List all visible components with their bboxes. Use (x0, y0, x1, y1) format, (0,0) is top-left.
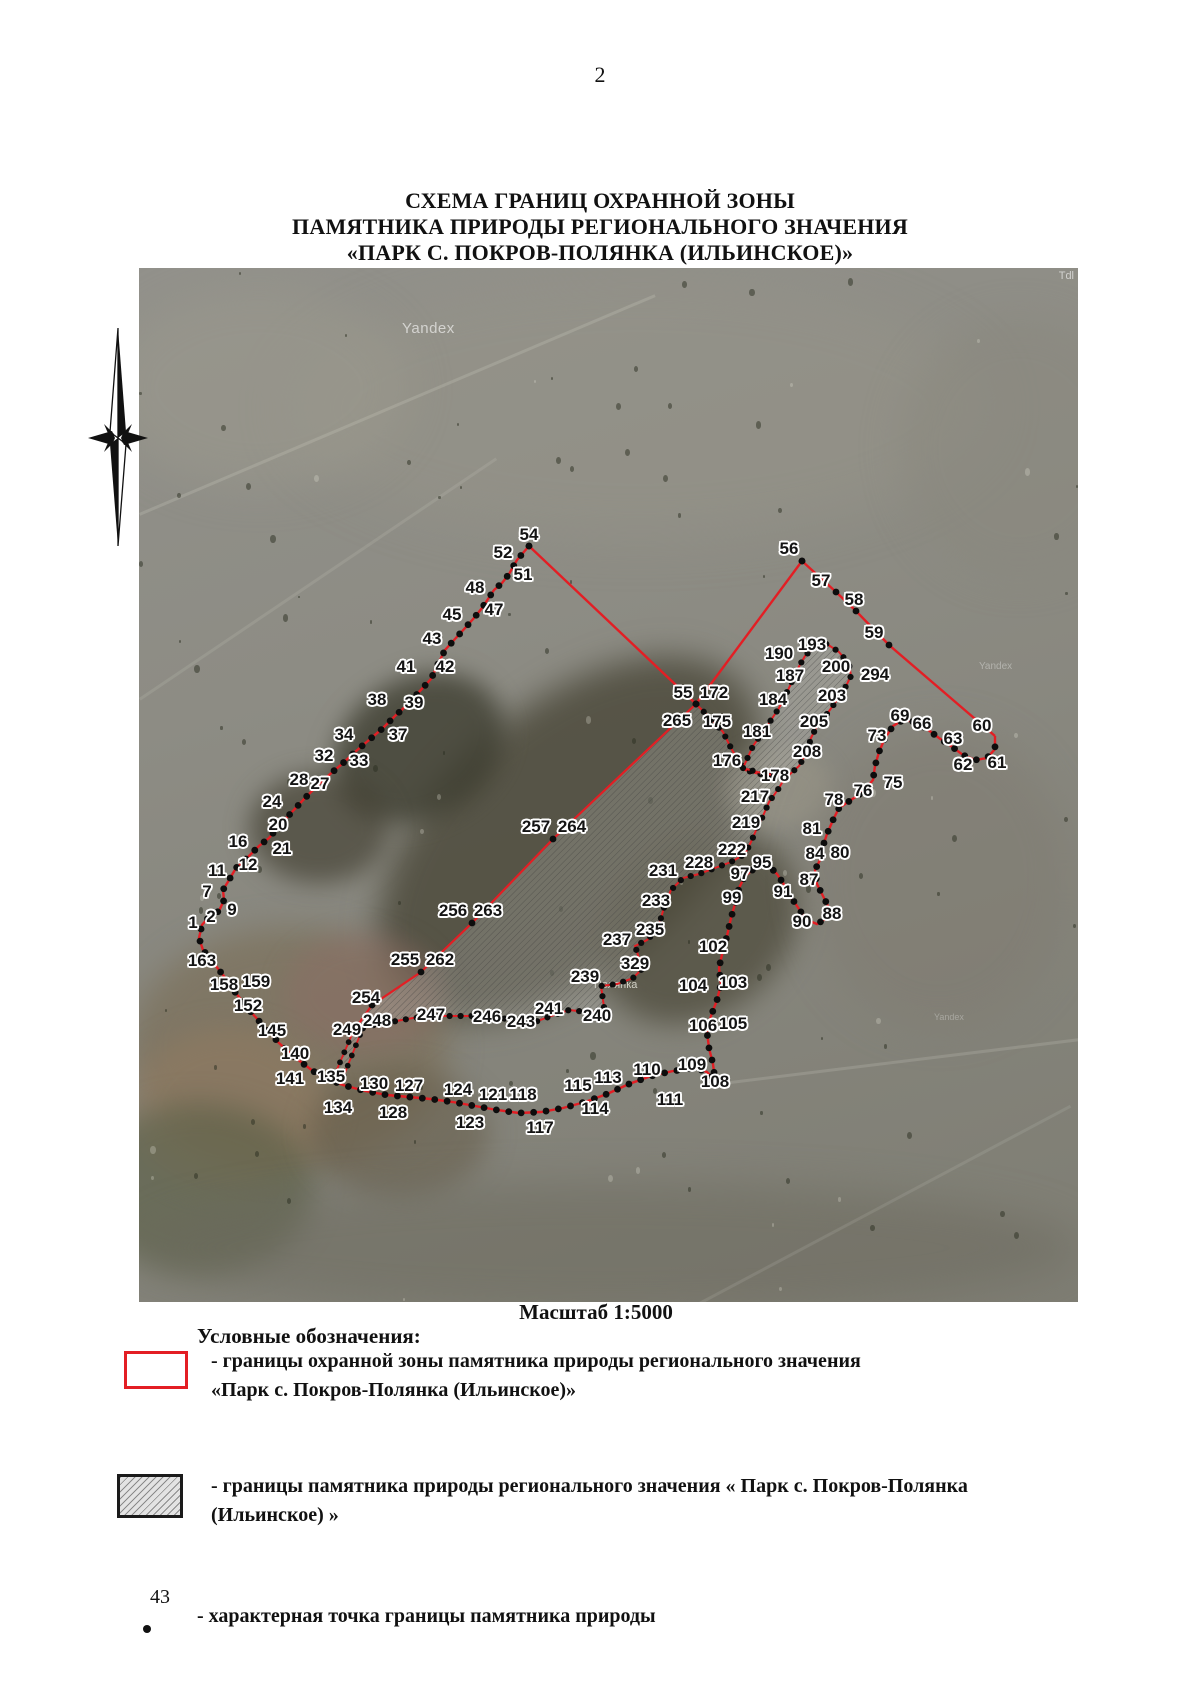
boundary-point-label: 61 (988, 753, 1007, 773)
boundary-point-label: 27 (311, 774, 330, 794)
boundary-point-label: 66 (913, 714, 932, 734)
boundary-point-label: 114 (581, 1099, 608, 1119)
boundary-point-label: 159 (242, 972, 270, 992)
boundary-point-label: 141 (276, 1069, 304, 1089)
boundary-point-label: 254 (352, 988, 380, 1008)
boundary-point-label: 235 (636, 920, 664, 940)
boundary-point-label: 246 (473, 1007, 501, 1027)
boundary-point-label: 1 (188, 913, 197, 933)
boundary-point-label: 80 (831, 843, 850, 863)
boundary-point-label: 178 (761, 766, 789, 786)
boundary-point-label: 237 (603, 930, 631, 950)
boundary-point-label: 163 (188, 951, 216, 971)
boundary-point-label: 187 (776, 666, 804, 686)
title-line-1: СХЕМА ГРАНИЦ ОХРАННОЙ ЗОНЫ (0, 188, 1200, 214)
boundary-point-label: 20 (269, 815, 288, 835)
title-line-3: «ПАРК С. ПОКРОВ-ПОЛЯНКА (ИЛЬИНСКОЕ)» (0, 240, 1200, 266)
boundary-point-label: 257 (522, 817, 550, 837)
boundary-point-label: 262 (426, 950, 454, 970)
boundary-point-label: 78 (825, 790, 844, 810)
boundary-point-label: 38 (368, 690, 387, 710)
boundary-point-label: 152 (234, 996, 262, 1016)
boundary-point-label: 115 (564, 1076, 591, 1096)
boundary-point-label: 81 (803, 819, 822, 839)
boundary-point-label: 90 (793, 912, 812, 932)
boundary-point-label: 55 (674, 683, 693, 703)
title-line-2: ПАМЯТНИКА ПРИРОДЫ РЕГИОНАЛЬНОГО ЗНАЧЕНИЯ (0, 214, 1200, 240)
boundary-point-label: 76 (854, 781, 873, 801)
legend-point-dot-icon (143, 1625, 151, 1633)
boundary-point-label: 7 (202, 882, 211, 902)
boundary-point-label: 58 (845, 590, 864, 610)
boundary-point-label: 43 (423, 629, 442, 649)
boundary-point-label: 16 (229, 832, 248, 852)
boundary-point-label: 130 (360, 1074, 388, 1094)
boundary-point-label: 48 (466, 578, 485, 598)
boundary-point-label: 33 (350, 751, 369, 771)
boundary-point-label: 84 (806, 844, 825, 864)
boundary-point-label: 239 (571, 967, 599, 987)
boundary-point-label: 128 (379, 1103, 407, 1123)
boundary-point-label: 203 (818, 686, 846, 706)
legend-monument-swatch (117, 1474, 183, 1518)
boundary-point-label: 247 (417, 1005, 445, 1025)
document-page: 2 СХЕМА ГРАНИЦ ОХРАННОЙ ЗОНЫ ПАМЯТНИКА П… (0, 0, 1200, 1697)
boundary-point-label: 184 (759, 690, 787, 710)
map-title: СХЕМА ГРАНИЦ ОХРАННОЙ ЗОНЫ ПАМЯТНИКА ПРИ… (0, 188, 1200, 266)
boundary-point-label: 123 (456, 1113, 484, 1133)
boundary-point-label: 32 (315, 746, 334, 766)
boundary-point-label: 41 (397, 657, 416, 677)
boundary-point-label: 88 (823, 904, 842, 924)
satellite-map: Yandex Yandex Yandex Tdl Полянка 5452514… (139, 268, 1078, 1302)
boundary-point-label: 102 (699, 937, 727, 957)
boundary-point-label: 75 (884, 773, 903, 793)
boundary-point-label: 176 (713, 751, 741, 771)
boundary-point-label: 60 (973, 716, 992, 736)
boundary-point-label: 121 (479, 1085, 507, 1105)
boundary-point-label: 56 (780, 539, 799, 559)
legend-point-number: 43 (150, 1586, 170, 1609)
boundary-point-label: 249 (333, 1020, 361, 1040)
boundary-point-label: 54 (520, 525, 539, 545)
legend-zone-text-line2: «Парк с. Покров-Полянка (Ильинское)» (211, 1376, 1091, 1405)
boundary-point-label: 73 (868, 726, 887, 746)
boundary-point-label: 200 (822, 657, 850, 677)
boundary-point-label: 222 (718, 840, 746, 860)
boundary-point-label: 135 (317, 1067, 345, 1087)
boundary-point-label: 134 (324, 1098, 352, 1118)
boundary-point-label: 264 (558, 817, 586, 837)
map-scale-label: Масштаб 1:5000 (139, 1300, 1053, 1325)
boundary-point-label: 263 (474, 901, 502, 921)
boundary-point-label: 105 (719, 1014, 747, 1034)
boundary-point-label: 228 (685, 853, 713, 873)
boundary-point-label: 231 (649, 861, 677, 881)
boundary-point-label: 208 (793, 742, 821, 762)
boundary-point-label: 97 (731, 864, 750, 884)
legend-monument-text: - границы памятника природы региональног… (211, 1472, 1091, 1530)
boundary-point-label: 193 (798, 635, 826, 655)
boundary-point-label: 34 (335, 725, 354, 745)
legend-monument-text-line1: - границы памятника природы региональног… (211, 1472, 1091, 1501)
boundary-point-label: 118 (509, 1085, 536, 1105)
boundary-point-label: 52 (494, 543, 513, 563)
point-labels-layer: 5452514847454342413839343732332827242016… (139, 268, 1078, 1302)
boundary-point-label: 294 (861, 665, 889, 685)
boundary-point-label: 265 (663, 711, 691, 731)
boundary-point-label: 47 (485, 600, 504, 620)
boundary-point-label: 172 (700, 683, 728, 703)
legend-zone-text: - границы охранной зоны памятника природ… (211, 1347, 1091, 1405)
boundary-point-label: 42 (436, 657, 455, 677)
legend-heading: Условные обозначения: (197, 1324, 421, 1349)
north-arrow-icon (86, 326, 150, 548)
boundary-point-label: 108 (701, 1072, 729, 1092)
boundary-point-label: 28 (290, 770, 309, 790)
boundary-point-label: 217 (741, 787, 769, 807)
boundary-point-label: 175 (703, 712, 731, 732)
boundary-point-label: 255 (391, 950, 419, 970)
boundary-point-label: 63 (944, 729, 963, 749)
boundary-point-label: 87 (800, 870, 819, 890)
boundary-point-label: 127 (395, 1076, 423, 1096)
boundary-point-label: 145 (258, 1021, 286, 1041)
boundary-point-label: 21 (273, 839, 292, 859)
boundary-point-label: 69 (891, 706, 910, 726)
legend-zone-swatch (124, 1351, 188, 1389)
boundary-point-label: 140 (281, 1044, 309, 1064)
boundary-point-label: 233 (642, 891, 670, 911)
boundary-point-label: 240 (583, 1006, 611, 1026)
boundary-point-label: 190 (765, 644, 793, 664)
boundary-point-label: 91 (774, 882, 793, 902)
boundary-point-label: 110 (633, 1060, 660, 1080)
boundary-point-label: 9 (227, 900, 236, 920)
boundary-point-label: 241 (535, 999, 563, 1019)
boundary-point-label: 219 (732, 813, 760, 833)
boundary-point-label: 158 (210, 975, 238, 995)
boundary-point-label: 181 (743, 722, 771, 742)
boundary-point-label: 117 (526, 1118, 553, 1138)
boundary-point-label: 111 (657, 1090, 684, 1110)
boundary-point-label: 24 (263, 792, 282, 812)
boundary-point-label: 248 (363, 1011, 391, 1031)
boundary-point-label: 11 (208, 861, 226, 881)
boundary-point-label: 104 (679, 976, 707, 996)
boundary-point-label: 103 (719, 973, 747, 993)
legend-zone-text-line1: - границы охранной зоны памятника природ… (211, 1347, 1091, 1376)
boundary-point-label: 329 (621, 954, 649, 974)
boundary-point-label: 62 (954, 755, 973, 775)
boundary-point-label: 37 (389, 725, 408, 745)
boundary-point-label: 113 (594, 1068, 621, 1088)
boundary-point-label: 59 (865, 623, 884, 643)
boundary-point-label: 95 (753, 853, 772, 873)
boundary-point-label: 2 (206, 907, 215, 927)
boundary-point-label: 124 (444, 1080, 472, 1100)
boundary-point-label: 99 (723, 888, 742, 908)
boundary-point-label: 51 (514, 565, 533, 585)
page-number: 2 (0, 62, 1200, 88)
boundary-point-label: 57 (812, 571, 831, 591)
boundary-point-label: 45 (443, 605, 462, 625)
boundary-point-label: 39 (405, 693, 424, 713)
legend-point-text: - характерная точка границы памятника пр… (197, 1602, 1077, 1631)
boundary-point-label: 243 (507, 1012, 535, 1032)
boundary-point-label: 106 (689, 1016, 717, 1036)
boundary-point-label: 205 (800, 712, 828, 732)
boundary-point-label: 12 (239, 855, 258, 875)
boundary-point-label: 256 (439, 901, 467, 921)
legend-monument-text-line2: (Ильинское) » (211, 1501, 1091, 1530)
